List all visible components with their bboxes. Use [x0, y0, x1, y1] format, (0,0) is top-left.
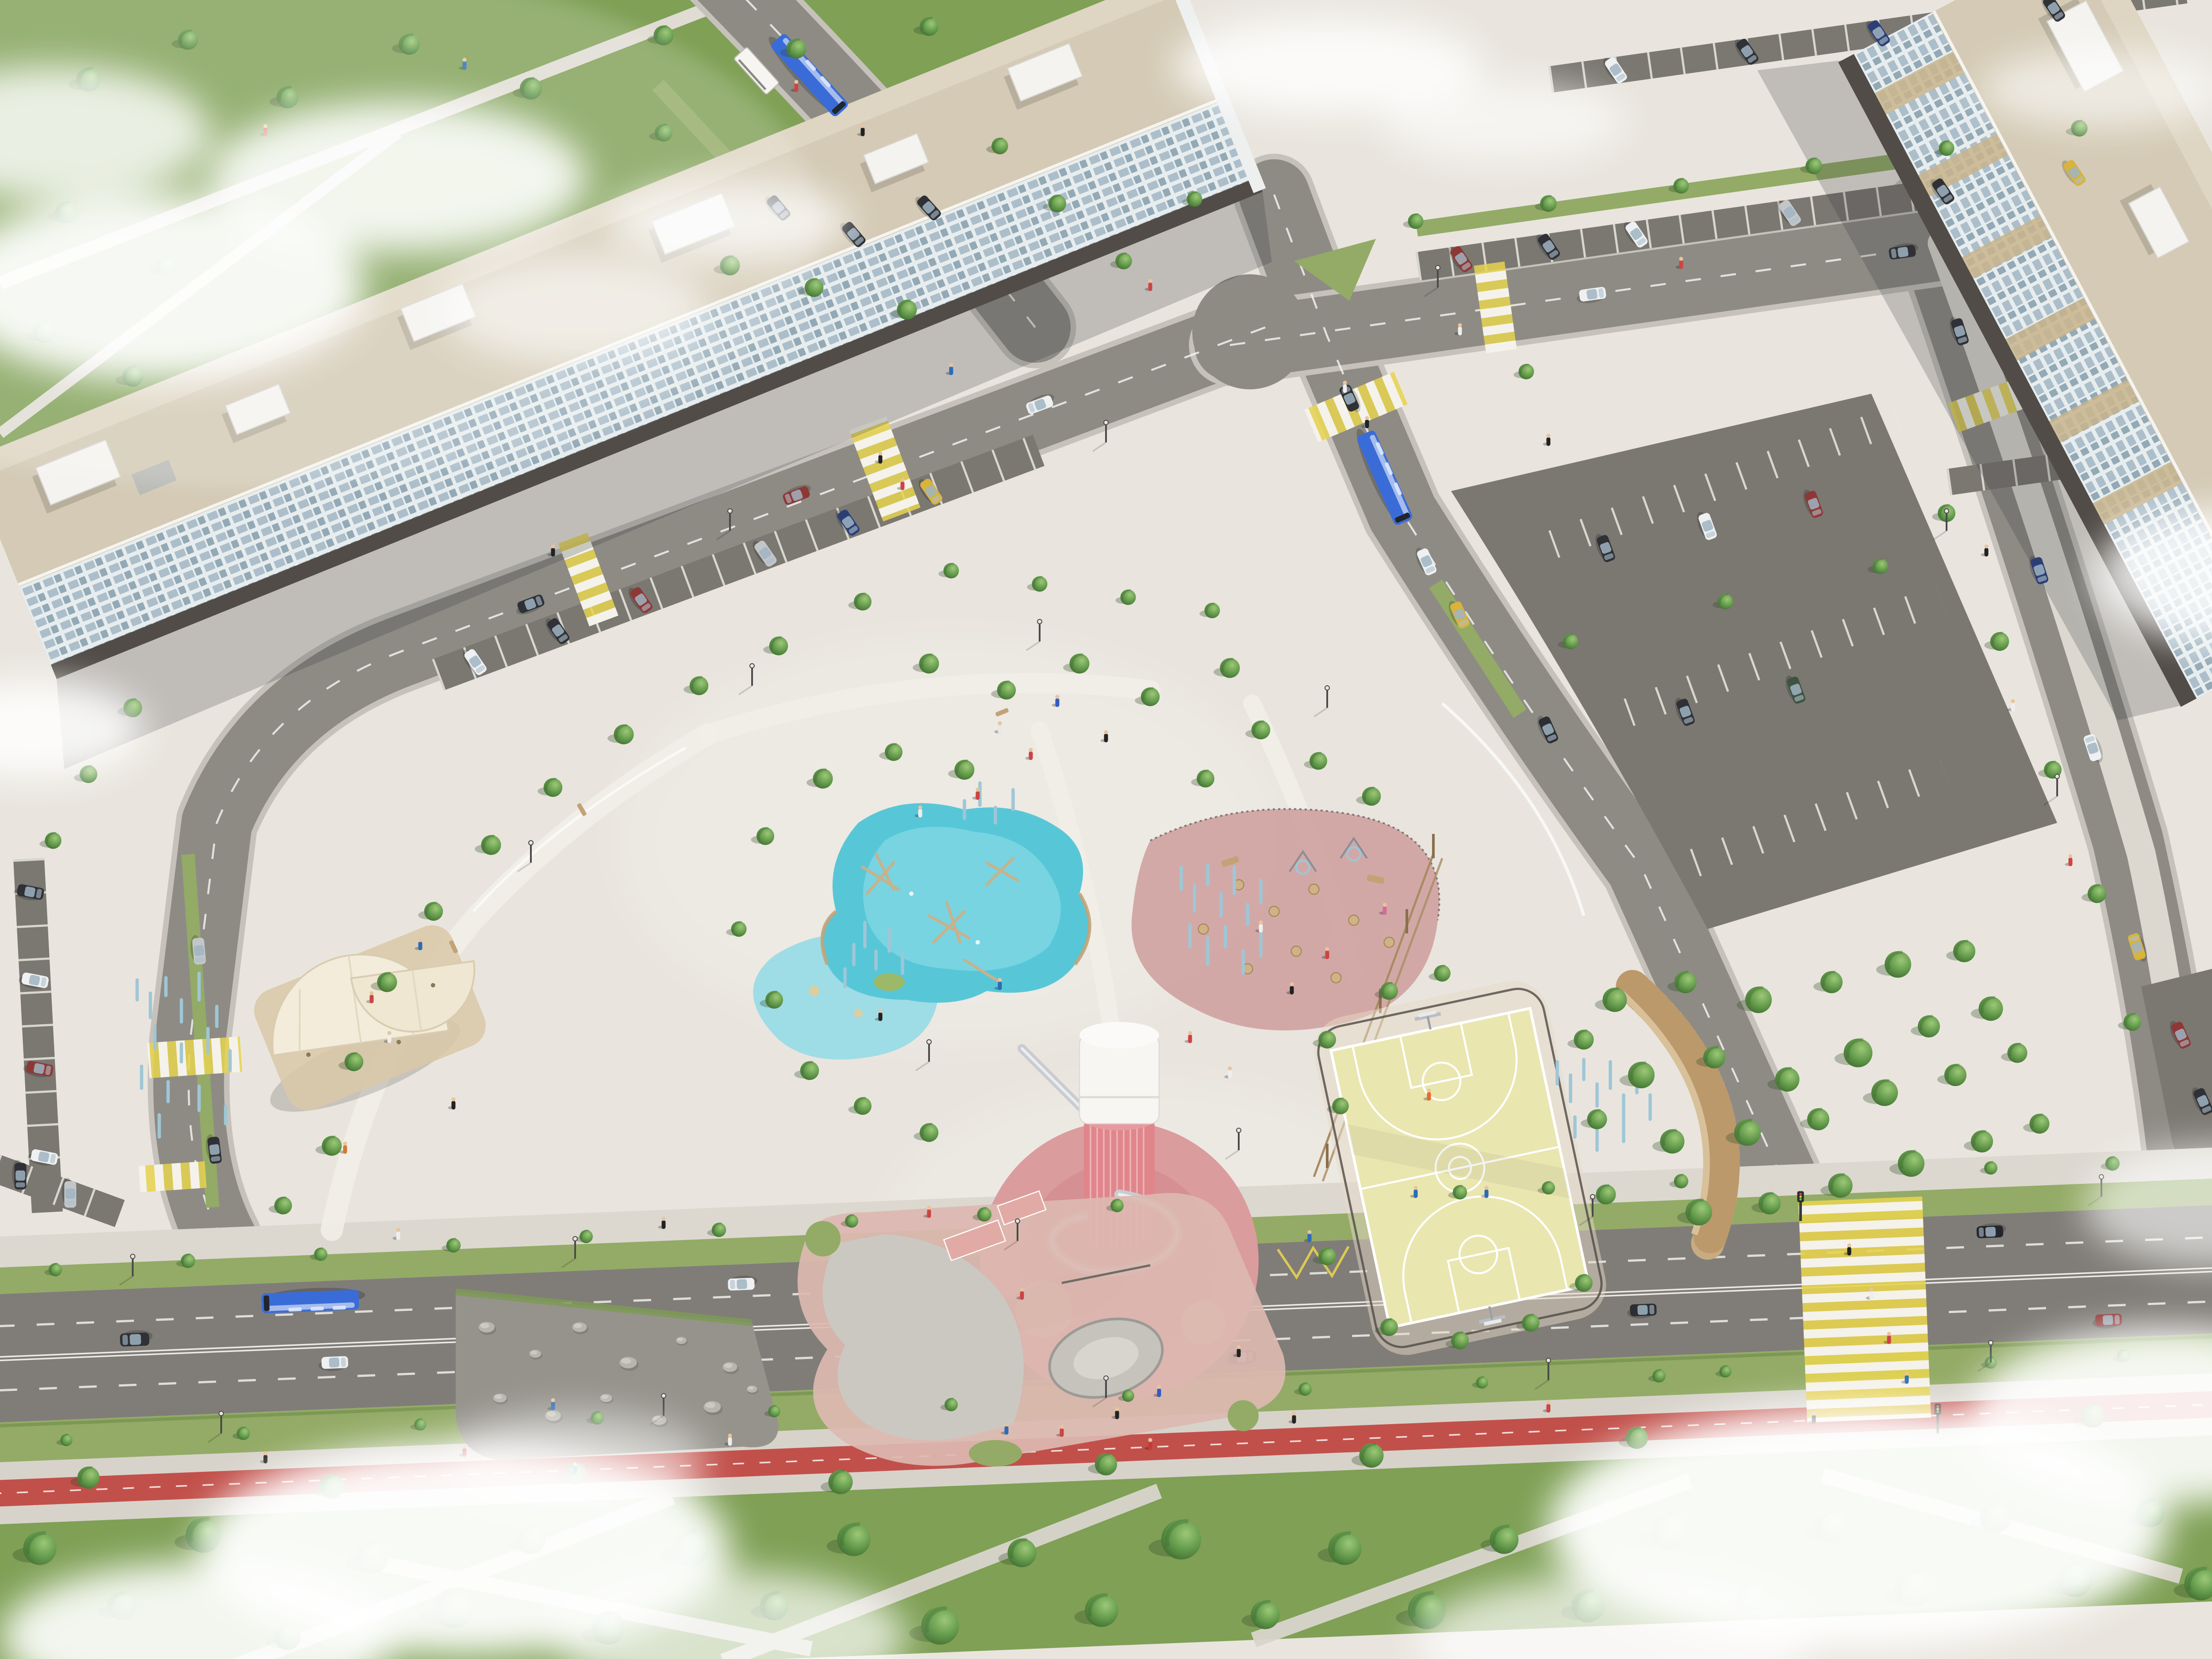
parked-car	[62, 1178, 77, 1208]
aerial-park-rendering: Aerial rendering of a new urban park wit…	[0, 0, 2212, 1659]
zebra-crossing-large	[1798, 1197, 1931, 1423]
zebra-crossing	[138, 1161, 207, 1192]
cloud	[442, 1411, 708, 1509]
zebra-crossing	[147, 1037, 242, 1078]
parked-car	[12, 1160, 27, 1190]
cloud	[1980, 49, 2212, 128]
intersection	[1192, 274, 1307, 389]
cloud	[1382, 82, 1626, 161]
